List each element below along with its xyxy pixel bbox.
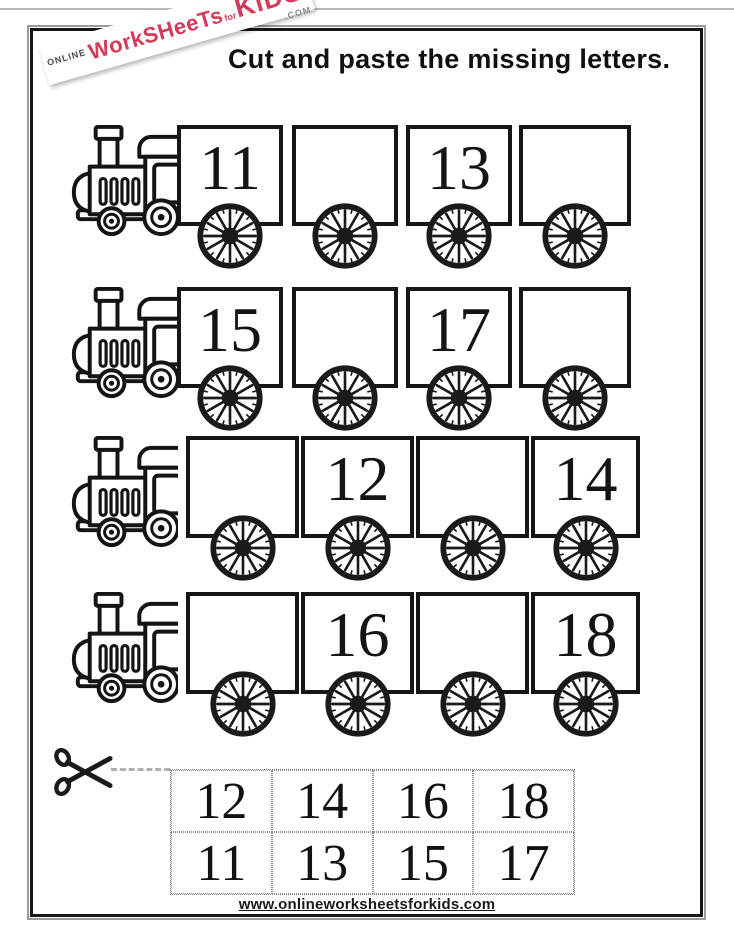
wagon-wheel-icon [440,671,506,737]
wagon-number: 18 [535,596,636,667]
locomotive-icon [54,591,178,707]
wagon-number: 16 [305,596,410,667]
wagon-number [420,596,525,603]
locomotive-icon [54,124,178,240]
wagon-number [296,129,394,136]
wagon-wheel-icon [325,515,391,581]
train-wagon-blank [292,287,398,388]
wagon-wheel-icon [210,671,276,737]
logo-online-text: ONLINE [46,47,87,68]
wagon-wheel-icon [542,365,608,431]
number-tile: 15 [373,832,474,894]
number-tile: 18 [473,770,574,832]
wagon-number [296,291,394,298]
train-wagon-blank [186,592,299,694]
wagon-number: 14 [535,440,636,511]
number-tile: 12 [171,770,272,832]
train-wagon-blank [519,125,631,226]
train-wagon-blank [416,592,529,694]
train-wagon: 12 [301,436,414,538]
train-row-1: 11 13 [0,122,734,282]
train-wagon: 13 [406,125,512,226]
train-row-4: 16 18 [0,589,734,749]
train-wagon: 15 [177,287,283,388]
wagon-number: 12 [305,440,410,511]
cut-out-number-tiles: 12 14 16 18 11 13 15 17 [170,769,575,895]
page-title: Cut and paste the missing letters. [228,44,670,75]
wagon-number [420,440,525,447]
train-wagon: 14 [531,436,640,538]
wagon-wheel-icon [312,365,378,431]
wagon-number: 15 [181,291,279,362]
train-wagon-blank [416,436,529,538]
wagon-wheel-icon [197,365,263,431]
number-tile: 17 [473,832,574,894]
locomotive-icon [54,286,178,402]
wagon-wheel-icon [312,203,378,269]
worksheet-page: ONLINEWorkSHeeTsforKiDS .COM Cut and pas… [0,0,734,950]
train-wagon: 11 [177,125,283,226]
train-wagon: 17 [406,287,512,388]
number-tile: 14 [272,770,373,832]
wagon-number: 11 [181,129,279,200]
wagon-wheel-icon [553,671,619,737]
cut-dashed-line [111,768,170,771]
wagon-wheel-icon [197,203,263,269]
footer-website-url: www.onlineworksheetsforkids.com [0,896,734,913]
train-wagon-blank [519,287,631,388]
wagon-number [523,291,627,298]
wagon-wheel-icon [210,515,276,581]
number-tile: 16 [373,770,474,832]
wagon-wheel-icon [553,515,619,581]
wagon-number: 17 [410,291,508,362]
number-tile: 11 [171,832,272,894]
train-wagon-blank [186,436,299,538]
wagon-wheel-icon [426,203,492,269]
locomotive-icon [54,435,178,551]
scissors-icon [52,742,114,802]
wagon-number [523,129,627,136]
wagon-wheel-icon [440,515,506,581]
wagon-number [190,596,295,603]
number-tile: 13 [272,832,373,894]
wagon-wheel-icon [542,203,608,269]
wagon-wheel-icon [426,365,492,431]
page-top-edge [0,8,734,10]
train-wagon-blank [292,125,398,226]
train-row-3: 12 14 [0,433,734,593]
train-row-2: 15 17 [0,284,734,444]
train-wagon: 16 [301,592,414,694]
train-wagon: 18 [531,592,640,694]
wagon-number: 13 [410,129,508,200]
wagon-number [190,440,295,447]
wagon-wheel-icon [325,671,391,737]
